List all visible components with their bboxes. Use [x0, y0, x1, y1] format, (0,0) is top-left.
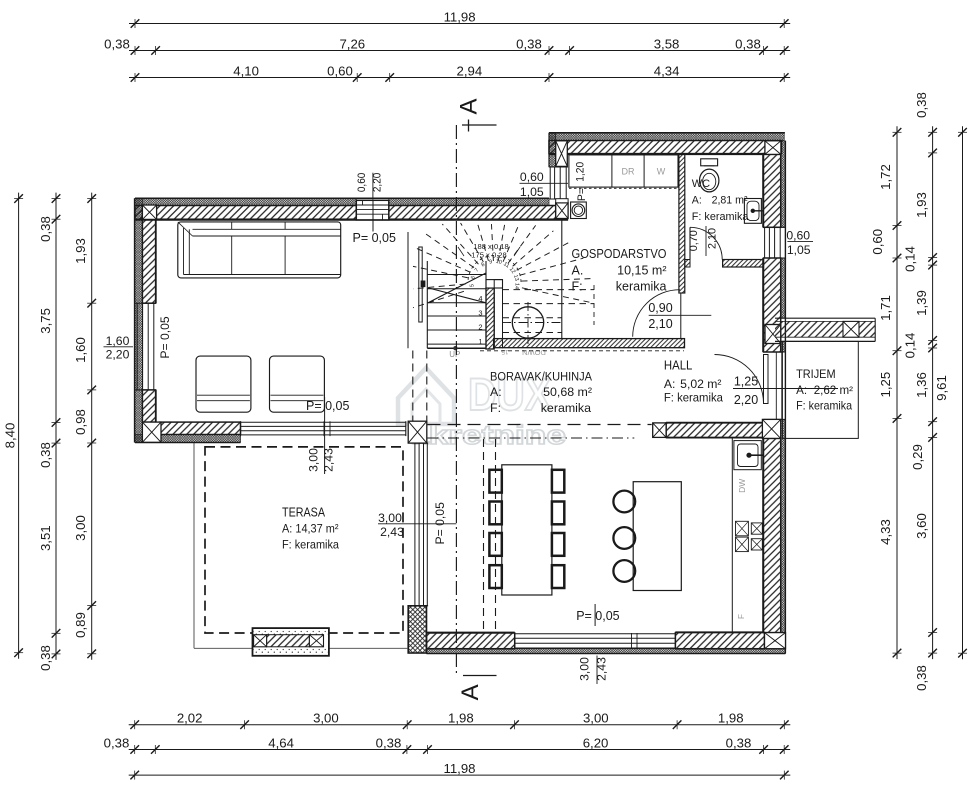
svg-text:F: F [737, 614, 746, 619]
svg-text:0,89: 0,89 [73, 612, 88, 638]
svg-text:1,60: 1,60 [106, 334, 130, 348]
svg-text:0,38: 0,38 [376, 735, 402, 750]
svg-text:P= 0,05: P= 0,05 [353, 231, 396, 245]
svg-text:2,43: 2,43 [322, 448, 336, 472]
svg-text:1,25: 1,25 [734, 375, 758, 389]
svg-text:P= 0,05: P= 0,05 [306, 399, 349, 413]
svg-text:4: 4 [478, 294, 482, 303]
svg-text:2,20: 2,20 [372, 173, 384, 193]
svg-text:0,38: 0,38 [104, 735, 130, 750]
svg-text:0,60: 0,60 [870, 229, 885, 255]
svg-text:8,40: 8,40 [3, 423, 18, 449]
svg-text:0,38: 0,38 [38, 645, 53, 671]
svg-text:0,38: 0,38 [914, 665, 929, 691]
svg-text:0,98: 0,98 [73, 409, 88, 435]
svg-text:4,34: 4,34 [654, 63, 680, 78]
svg-text:0,14: 0,14 [903, 333, 918, 359]
svg-text:A.: A. [572, 264, 584, 278]
svg-text:3,00: 3,00 [313, 711, 339, 726]
svg-text:TERASA: TERASA [282, 506, 326, 520]
svg-text:A: 14,37 m²: A: 14,37 m² [282, 522, 339, 536]
svg-text:14: 14 [513, 283, 520, 290]
svg-text:2,43: 2,43 [595, 657, 609, 681]
svg-text:3,75: 3,75 [38, 308, 53, 334]
svg-text:0,60: 0,60 [356, 173, 368, 193]
svg-text:0,90: 0,90 [648, 301, 672, 315]
svg-text:WC: WC [692, 178, 710, 190]
svg-text:1,98: 1,98 [448, 711, 474, 726]
svg-text:0,60: 0,60 [786, 229, 810, 243]
svg-text:0,38: 0,38 [104, 36, 130, 51]
svg-text:P= 0,05: P= 0,05 [433, 502, 447, 545]
svg-text:3,60: 3,60 [914, 513, 929, 539]
svg-text:0,38: 0,38 [914, 92, 929, 118]
svg-text:P= 0,05: P= 0,05 [158, 316, 172, 359]
svg-text:3,00: 3,00 [578, 657, 592, 681]
svg-text:GOSPODARSTVO: GOSPODARSTVO [572, 246, 667, 261]
svg-text:F: keramika: F: keramika [796, 400, 853, 413]
svg-text:0,38: 0,38 [38, 442, 53, 468]
svg-text:keramika: keramika [616, 280, 667, 294]
svg-text:A: A [457, 684, 484, 700]
svg-text:1,05: 1,05 [520, 185, 544, 199]
svg-text:10: 10 [495, 259, 502, 266]
svg-text:4,10: 4,10 [233, 63, 259, 78]
svg-text:A: A [456, 98, 483, 114]
svg-text:0,60: 0,60 [327, 63, 353, 78]
svg-text:A:: A: [490, 385, 502, 399]
svg-text:7,26: 7,26 [339, 36, 365, 51]
svg-text:2,02: 2,02 [177, 711, 203, 726]
svg-text:1,39: 1,39 [914, 290, 929, 316]
svg-text:1,05: 1,05 [787, 243, 811, 257]
svg-text:0,38: 0,38 [516, 36, 542, 51]
svg-text:3,00: 3,00 [73, 515, 88, 541]
svg-text:2: 2 [478, 323, 482, 332]
svg-text:A:: A: [692, 194, 702, 206]
svg-text:0,60: 0,60 [520, 170, 544, 184]
svg-text:UP: UP [449, 350, 460, 359]
svg-text:10,15 m²: 10,15 m² [617, 264, 666, 278]
svg-text:2,62 m²: 2,62 m² [814, 384, 853, 397]
svg-text:11,98: 11,98 [443, 761, 475, 776]
svg-text:1,72: 1,72 [878, 164, 893, 190]
svg-text:2,20: 2,20 [106, 348, 130, 362]
svg-text:BORAVAK/KUHINJA: BORAVAK/KUHINJA [490, 370, 593, 384]
svg-text:3,51: 3,51 [38, 525, 53, 551]
svg-text:4,33: 4,33 [878, 519, 893, 545]
svg-text:1,60: 1,60 [73, 337, 88, 363]
svg-text:0,14: 0,14 [903, 246, 918, 272]
svg-text:2,10: 2,10 [648, 317, 672, 331]
svg-text:DOWN: DOWN [522, 348, 546, 357]
svg-text:3,58: 3,58 [654, 36, 680, 51]
svg-text:0,29: 0,29 [910, 444, 925, 470]
svg-text:0,38: 0,38 [726, 735, 752, 750]
svg-text:5,02 m²: 5,02 m² [680, 377, 721, 391]
svg-text:DW: DW [737, 479, 747, 493]
svg-text:TRIJEM: TRIJEM [796, 367, 836, 381]
svg-text:F: keramika: F: keramika [692, 211, 749, 223]
svg-text:1: 1 [478, 337, 482, 346]
svg-text:0,38: 0,38 [38, 216, 53, 242]
svg-text:15: 15 [501, 348, 509, 355]
svg-text:F: keramika: F: keramika [282, 538, 339, 552]
svg-text:keramika: keramika [541, 401, 591, 415]
svg-text:DR: DR [622, 167, 635, 177]
svg-text:5: 5 [469, 284, 475, 287]
svg-text:F: keramika: F: keramika [664, 391, 723, 405]
svg-text:2,20: 2,20 [734, 393, 758, 407]
svg-text:A:: A: [664, 377, 676, 391]
svg-text:1,93: 1,93 [73, 238, 88, 264]
svg-text:1,20: 1,20 [574, 162, 586, 182]
svg-text:HALL: HALL [664, 359, 693, 373]
svg-text:3,00: 3,00 [307, 448, 321, 472]
svg-text:6,20: 6,20 [583, 735, 609, 750]
svg-text:2,94: 2,94 [457, 63, 483, 78]
svg-text:3,00: 3,00 [378, 511, 402, 525]
svg-text:1,71: 1,71 [878, 295, 893, 321]
svg-text:175 x 0,28: 175 x 0,28 [471, 251, 506, 260]
svg-text:3,00: 3,00 [583, 711, 609, 726]
svg-text:1,93: 1,93 [914, 192, 929, 218]
svg-text:P=: P= [576, 188, 588, 201]
svg-text:P= 0,05: P= 0,05 [576, 609, 619, 623]
svg-text:W: W [657, 167, 666, 177]
svg-text:4,64: 4,64 [268, 735, 294, 750]
svg-text:1,36: 1,36 [914, 372, 929, 398]
svg-text:F:: F: [572, 280, 583, 294]
svg-text:11,98: 11,98 [444, 9, 476, 24]
svg-text:50,68 m²: 50,68 m² [543, 385, 592, 399]
svg-text:9,61: 9,61 [934, 375, 949, 401]
svg-text:F:: F: [490, 401, 501, 415]
svg-text:2,43: 2,43 [380, 525, 404, 539]
svg-text:3: 3 [478, 309, 482, 318]
svg-text:A:: A: [796, 384, 807, 397]
svg-text:0,70: 0,70 [688, 230, 700, 251]
svg-text:1,25: 1,25 [878, 372, 893, 398]
svg-text:2,10: 2,10 [706, 228, 718, 249]
svg-text:0,38: 0,38 [735, 36, 761, 51]
svg-text:2,81 m²: 2,81 m² [712, 194, 748, 206]
svg-text:1,98: 1,98 [718, 711, 744, 726]
